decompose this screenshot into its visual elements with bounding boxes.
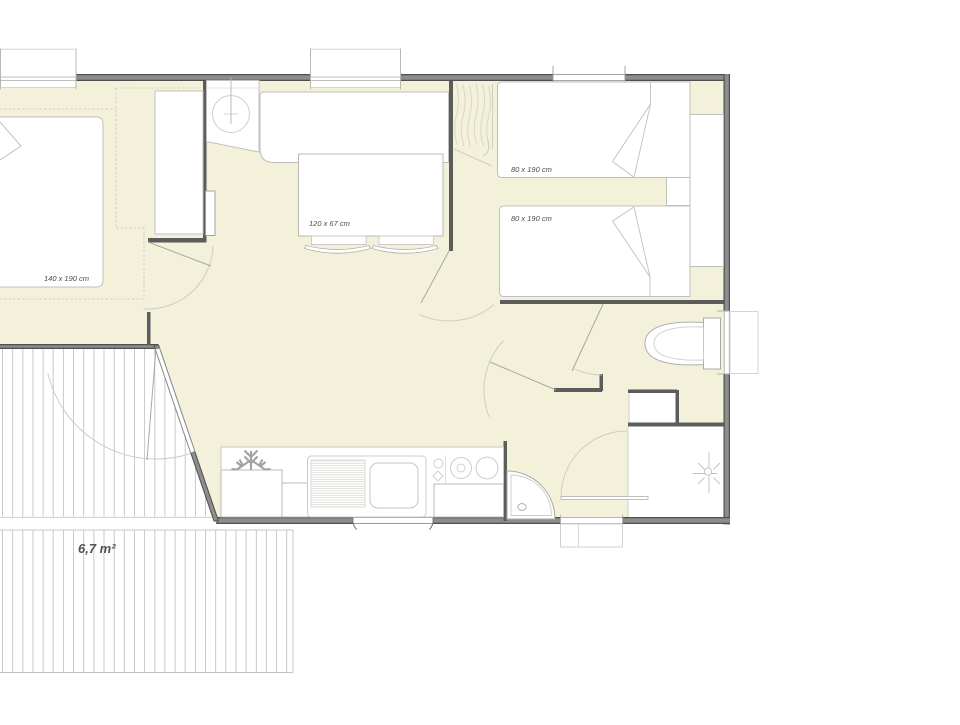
svg-text:80 x 190 cm: 80 x 190 cm — [511, 214, 552, 223]
svg-text:80 x 190 cm: 80 x 190 cm — [511, 165, 552, 174]
svg-text:6,7 m²: 6,7 m² — [78, 541, 116, 556]
svg-text:140 x 190 cm: 140 x 190 cm — [44, 274, 89, 283]
svg-text:120 x 67 cm: 120 x 67 cm — [309, 219, 350, 228]
